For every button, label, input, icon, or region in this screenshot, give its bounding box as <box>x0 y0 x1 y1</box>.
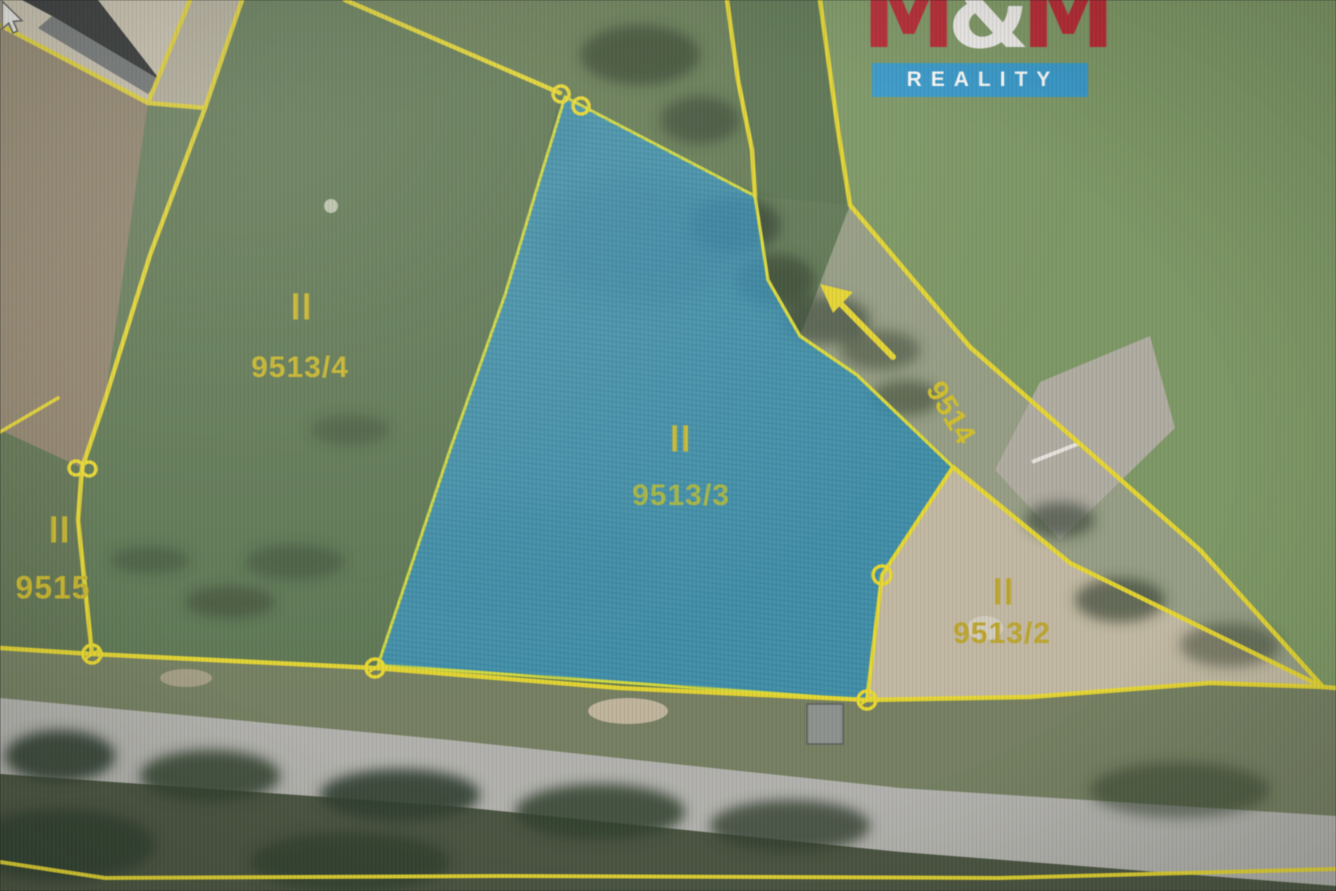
aerial-terrain <box>0 0 1336 891</box>
mouse-cursor-icon <box>0 0 26 36</box>
logo-ampersand: & <box>948 0 1022 70</box>
logo-tagline: REALITY <box>872 63 1088 97</box>
mm-reality-logo: M&M REALITY <box>858 0 1106 102</box>
small-shed <box>807 704 843 744</box>
map-image: II 9513/4 II 9513/3 II 9515 II 9513/2 95… <box>0 0 1336 891</box>
logo-brand-text: M&M <box>862 0 1107 63</box>
